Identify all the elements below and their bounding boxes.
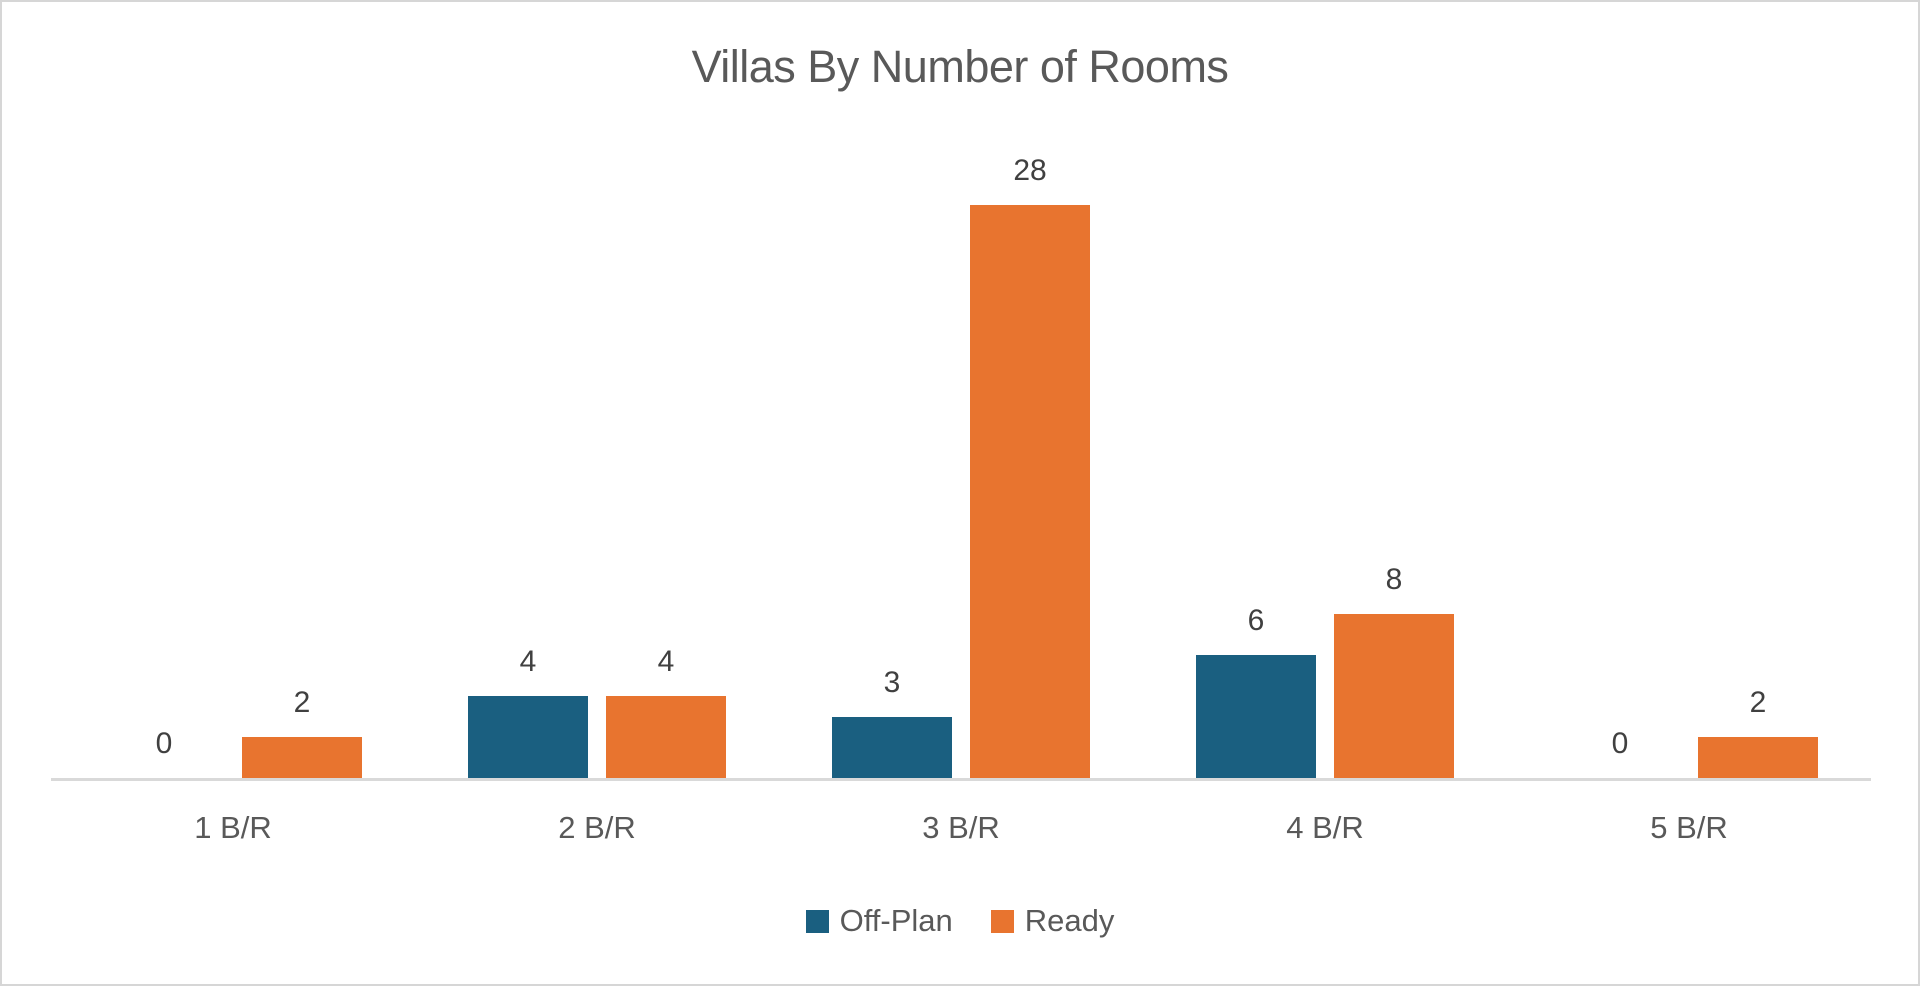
chart-title: Villas By Number of Rooms xyxy=(2,38,1918,97)
legend-label: Ready xyxy=(1025,903,1115,939)
legend-item-off-plan[interactable]: Off-Plan xyxy=(806,903,953,939)
category-group-2-b-r: 44 xyxy=(415,122,779,778)
bar-off-plan[interactable] xyxy=(468,696,588,778)
bar-slot: 6 xyxy=(1196,603,1316,778)
bar-slot: 4 xyxy=(468,644,588,778)
bar-off-plan[interactable] xyxy=(1196,655,1316,778)
data-label: 2 xyxy=(1750,685,1767,721)
data-label: 28 xyxy=(1013,153,1046,189)
category-group-1-b-r: 02 xyxy=(51,122,415,778)
legend-item-ready[interactable]: Ready xyxy=(991,903,1115,939)
x-axis-label: 2 B/R xyxy=(415,808,779,848)
data-label: 0 xyxy=(1612,726,1629,762)
chart-frame: Villas By Number of Rooms 02443286802 1 … xyxy=(0,0,1920,986)
bar-slot: 2 xyxy=(1698,685,1818,778)
bar-slot: 0 xyxy=(104,726,224,778)
x-axis-label: 3 B/R xyxy=(779,808,1143,848)
bar-slot: 3 xyxy=(832,665,952,778)
data-label: 8 xyxy=(1386,562,1403,598)
legend-swatch-icon xyxy=(991,910,1014,933)
data-label: 6 xyxy=(1248,603,1265,639)
x-axis-label: 5 B/R xyxy=(1507,808,1871,848)
bar-slot: 28 xyxy=(970,153,1090,778)
bar-slot: 4 xyxy=(606,644,726,778)
bar-slot: 0 xyxy=(1560,726,1680,778)
x-axis-label: 1 B/R xyxy=(51,808,415,848)
bar-ready[interactable] xyxy=(1698,737,1818,778)
plot-area: 02443286802 xyxy=(51,122,1871,781)
bar-ready[interactable] xyxy=(1334,614,1454,778)
category-group-4-b-r: 68 xyxy=(1143,122,1507,778)
bar-slot: 8 xyxy=(1334,562,1454,778)
bar-ready[interactable] xyxy=(242,737,362,778)
bar-ready[interactable] xyxy=(970,205,1090,778)
bar-ready[interactable] xyxy=(606,696,726,778)
legend-swatch-icon xyxy=(806,910,829,933)
data-label: 0 xyxy=(156,726,173,762)
legend-label: Off-Plan xyxy=(840,903,953,939)
data-label: 4 xyxy=(520,644,537,680)
bar-off-plan[interactable] xyxy=(832,717,952,778)
category-group-3-b-r: 328 xyxy=(779,122,1143,778)
data-label: 2 xyxy=(294,685,311,721)
legend: Off-PlanReady xyxy=(2,903,1918,939)
bar-slot: 2 xyxy=(242,685,362,778)
x-axis-labels: 1 B/R2 B/R3 B/R4 B/R5 B/R xyxy=(51,808,1871,848)
data-label: 3 xyxy=(884,665,901,701)
data-label: 4 xyxy=(658,644,675,680)
category-group-5-b-r: 02 xyxy=(1507,122,1871,778)
x-axis-label: 4 B/R xyxy=(1143,808,1507,848)
